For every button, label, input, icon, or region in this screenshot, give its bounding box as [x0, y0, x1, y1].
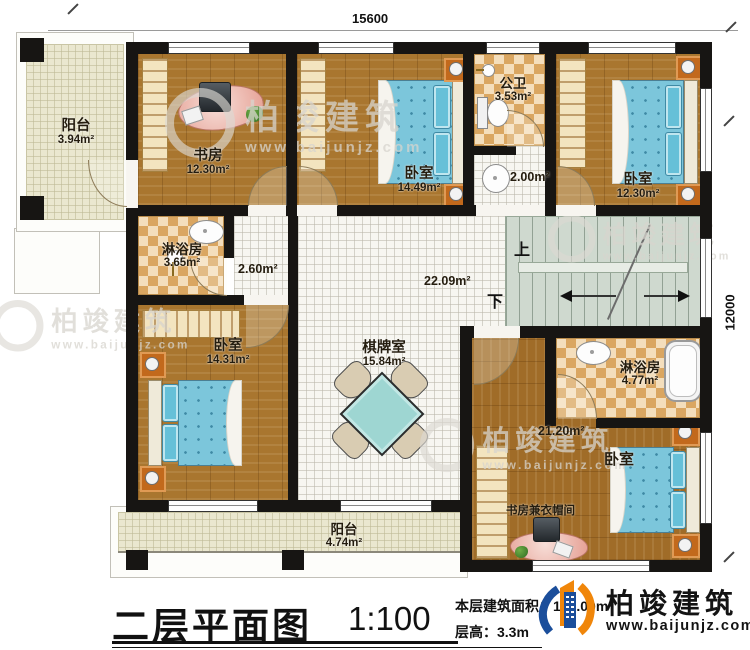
stair-arrow-right-icon	[678, 290, 690, 302]
stair-up-label: 上	[514, 236, 530, 260]
room-area: 3.53m²	[484, 91, 542, 104]
floor-height-text: 层高：3.3m	[455, 622, 529, 642]
room-label-wash-area: 2.00m²	[510, 170, 550, 184]
room-area: 14.49m²	[376, 182, 462, 195]
door-opening	[244, 295, 288, 305]
door-opening	[556, 205, 596, 216]
wall-shower-right-left	[545, 338, 556, 426]
room-label-public-bath: 公卫 3.53m²	[484, 76, 542, 104]
room-name: 淋浴房	[142, 242, 222, 257]
top-dimension-line	[48, 30, 738, 31]
wall-center-left	[288, 216, 298, 500]
nightstand-lamp-icon	[681, 60, 695, 74]
dimension-tick	[67, 3, 78, 14]
room-area: 15.84m²	[338, 356, 430, 369]
nightstand-lamp-icon	[678, 538, 692, 552]
room-label-hall: 22.09m²	[424, 274, 471, 288]
wall-shower-left	[224, 216, 234, 258]
door-opening	[474, 326, 520, 338]
room-area: 12.30m²	[596, 188, 680, 201]
room-label-chess-room: 棋牌室 15.84m²	[338, 340, 430, 369]
wall-bedroom-bath	[463, 54, 474, 205]
bed-headboard	[686, 447, 700, 533]
window	[486, 42, 540, 54]
room-name: 公卫	[484, 76, 542, 91]
stair-arrow-line	[572, 295, 616, 297]
room-label-bedroom-bottom-right: 卧室	[592, 452, 646, 469]
wall-shower-right-bottom	[596, 418, 700, 428]
balcony-column	[20, 38, 44, 62]
logo-building-blue	[564, 592, 576, 628]
closet-bedroom-right	[559, 58, 586, 168]
room-label-bedroom-top-mid: 卧室 14.49m²	[376, 166, 462, 195]
nightstand-lamp-icon	[681, 187, 695, 201]
balcony-door-opening	[126, 160, 138, 208]
closet-bedroom-mid	[300, 58, 326, 172]
room-area: 4.74m²	[306, 537, 382, 550]
hall-floor	[298, 216, 505, 330]
basin-drain-icon	[493, 176, 497, 180]
window	[168, 500, 258, 512]
plan-scale: 1:100	[348, 600, 431, 638]
room-label-corridor: 2.60m²	[238, 262, 278, 276]
wall-center-right	[460, 330, 472, 572]
wall-left	[126, 42, 138, 512]
dimension-tick	[723, 551, 734, 562]
stair-arrow-left-icon	[560, 290, 572, 302]
room-area: 3.65m²	[142, 257, 222, 270]
window	[532, 560, 650, 572]
room-area-bedroom-bottom-right: 21.20m²	[538, 424, 585, 438]
room-name: 淋浴房	[600, 360, 680, 375]
bed-pillow	[162, 384, 179, 422]
lower-roof-outline	[14, 228, 100, 294]
window	[318, 42, 394, 54]
balcony-column	[126, 550, 148, 570]
room-area: 12.30m²	[160, 164, 256, 177]
door-opening	[476, 205, 545, 216]
bed-pillow	[670, 451, 686, 489]
dimension-width: 15600	[352, 11, 388, 26]
room-label-study: 书房 12.30m²	[160, 148, 256, 177]
bed-pillow	[665, 85, 682, 129]
logo-swoosh-blue	[543, 589, 558, 632]
door-opening	[248, 205, 286, 216]
room-name: 棋牌室	[338, 340, 430, 356]
window	[700, 88, 712, 172]
door-opening	[297, 205, 337, 216]
window	[700, 432, 712, 524]
balcony-sliding-door	[340, 500, 432, 512]
corridor-floor	[234, 216, 288, 295]
dimension-tick	[723, 115, 734, 126]
watermark-logo-icon	[0, 300, 43, 351]
room-name: 卧室	[596, 172, 680, 188]
stair-handrail	[518, 262, 688, 273]
room-name: 卧室	[592, 452, 646, 469]
window	[588, 42, 676, 54]
window	[168, 42, 250, 54]
balcony-column	[20, 196, 44, 220]
balcony-bottom-floor	[118, 512, 466, 552]
wall-study-bedroom	[286, 54, 297, 205]
room-area: 3.94m²	[30, 134, 122, 147]
room-label-balcony-bottom: 阳台 4.74m²	[306, 522, 382, 550]
wall-bath-wash	[474, 146, 516, 155]
closet-bedroom-left	[142, 310, 240, 338]
floor-plan-canvas: 15600 12000 上 下	[0, 0, 750, 650]
room-name: 卧室	[188, 338, 268, 354]
room-area: 4.77m²	[600, 375, 680, 388]
bed-pillow	[433, 85, 451, 129]
shower-head-arm	[476, 69, 484, 71]
nightstand-lamp-icon	[449, 62, 463, 76]
room-name: 阳台	[306, 522, 382, 537]
room-name: 阳台	[30, 118, 122, 134]
basin-drain-icon	[203, 229, 207, 233]
room-name: 卧室	[376, 166, 462, 182]
room-label-balcony-top: 阳台 3.94m²	[30, 118, 122, 147]
closet-bedroom-bottom-right	[476, 445, 508, 559]
room-label-bedroom-top-right: 卧室 12.30m²	[596, 172, 680, 201]
balcony-column	[282, 550, 304, 570]
bed-pillow	[665, 132, 682, 176]
title-underline	[112, 641, 458, 644]
logo-swoosh-orange	[580, 586, 591, 632]
study-monitor-icon	[199, 82, 231, 112]
dimension-depth: 12000	[723, 283, 738, 343]
bed-headboard	[684, 80, 698, 184]
bottom-right-monitor-icon	[533, 517, 560, 542]
nightstand-lamp-icon	[145, 471, 159, 485]
basin-drain-icon	[590, 350, 594, 354]
company-website: www.baijunjz.com	[606, 618, 750, 634]
bed-headboard	[148, 380, 162, 466]
nightstand-lamp-icon	[145, 357, 159, 371]
bed-sheet	[226, 380, 242, 466]
room-name: 书房	[160, 148, 256, 164]
bed-pillow	[162, 424, 179, 462]
bed-pillow	[670, 491, 686, 529]
window	[700, 238, 712, 318]
wall-top-row	[138, 205, 712, 216]
title-underline-thin	[112, 647, 542, 648]
room-label-shower-left: 淋浴房 3.65m²	[142, 242, 222, 270]
stair-arrow-line	[644, 295, 680, 297]
company-name: 柏竣建筑	[606, 582, 738, 622]
room-area: 14.31m²	[188, 354, 268, 367]
room-label-bedroom-left: 卧室 14.31m²	[188, 338, 268, 367]
stair-down-label: 下	[487, 288, 503, 312]
room-label-shower-right: 淋浴房 4.77m²	[600, 360, 680, 388]
room-sublabel-study-cloakroom: 书房兼衣帽间	[506, 502, 575, 518]
company-logo-icon	[536, 574, 598, 644]
